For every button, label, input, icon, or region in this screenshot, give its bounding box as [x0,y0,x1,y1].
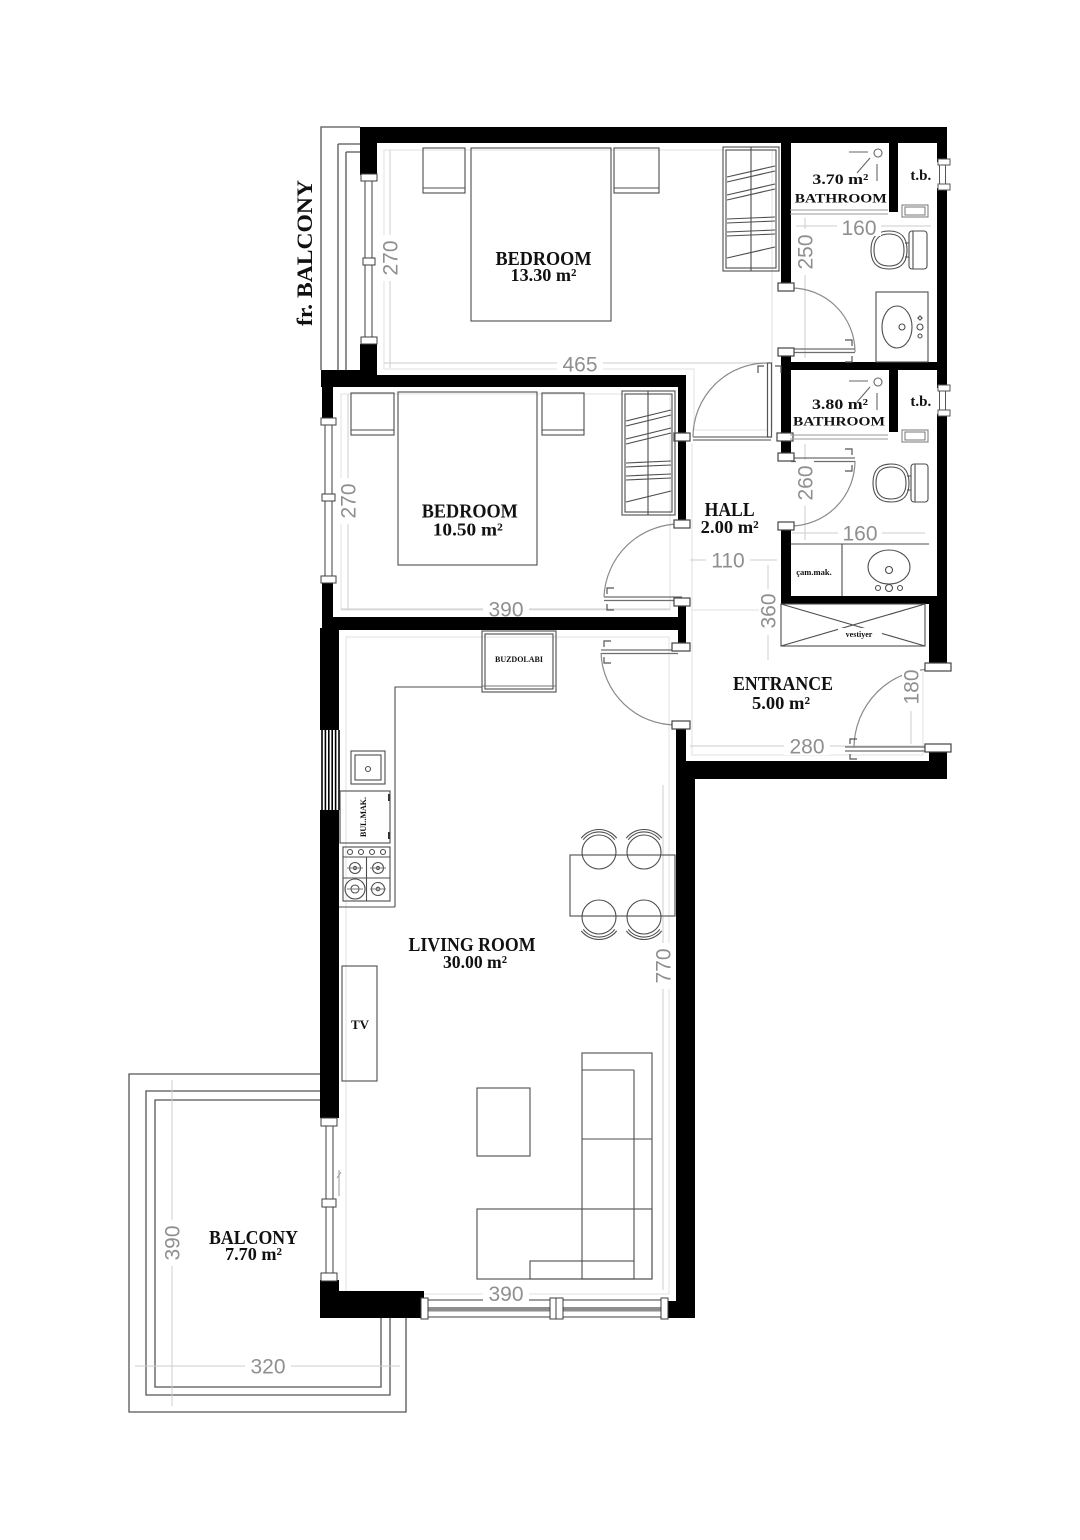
svg-text:13.30 m²: 13.30 m² [511,265,577,285]
svg-text:7.70 m²: 7.70 m² [225,1244,282,1264]
svg-text:320: 320 [250,1356,285,1379]
svg-text:BUL.MAK.: BUL.MAK. [359,797,368,837]
svg-text:180: 180 [901,669,924,704]
svg-text:TV: TV [351,1017,370,1032]
svg-text:BUZDOLABI: BUZDOLABI [495,655,543,664]
svg-text:5.00 m²: 5.00 m² [752,693,810,713]
svg-text:3.80 m²: 3.80 m² [812,397,869,413]
svg-text:250: 250 [795,234,818,269]
svg-text:465: 465 [562,354,597,377]
svg-text:vestiyer: vestiyer [846,630,873,639]
svg-text:770: 770 [653,948,676,983]
svg-text:30.00 m²: 30.00 m² [443,952,507,972]
svg-text:390: 390 [488,599,523,622]
svg-text:360: 360 [758,593,781,628]
svg-text:BATHROOM: BATHROOM [795,191,887,206]
svg-text:t.b.: t.b. [910,394,931,410]
svg-text:270: 270 [380,240,403,275]
svg-text:2.00 m²: 2.00 m² [701,517,759,537]
svg-text:çam.mak.: çam.mak. [796,567,831,577]
svg-text:3.70 m²: 3.70 m² [812,172,869,188]
svg-text:160: 160 [841,217,876,240]
svg-text:160: 160 [842,523,877,546]
svg-text:fr. BALCONY: fr. BALCONY [292,180,317,326]
svg-text:t.b.: t.b. [910,168,931,184]
svg-text:280: 280 [789,736,824,759]
svg-text:390: 390 [162,1225,185,1260]
svg-text:110: 110 [711,550,744,573]
svg-text:10.50 m²: 10.50 m² [433,520,503,540]
svg-text:ENTRANCE: ENTRANCE [733,673,833,695]
svg-text:390: 390 [488,1283,523,1306]
svg-text:BATHROOM: BATHROOM [793,414,885,429]
svg-text:260: 260 [795,465,818,500]
svg-text:270: 270 [338,483,361,518]
